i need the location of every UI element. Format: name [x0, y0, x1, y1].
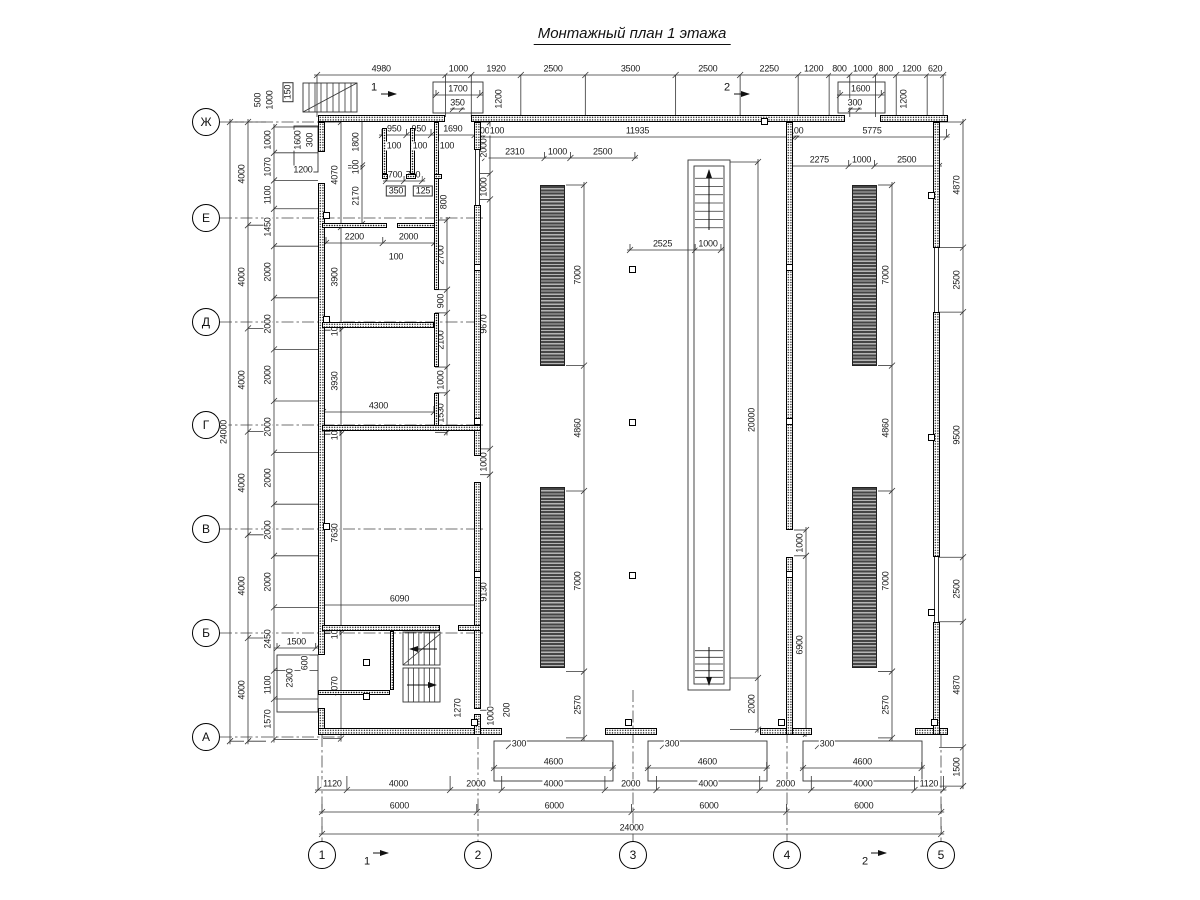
- dim-value: 4870: [953, 174, 962, 195]
- axis-bubble-row-А: А: [192, 723, 220, 751]
- column-mark: [931, 719, 938, 726]
- wall-segment: [318, 183, 325, 655]
- axis-bubble-row-Е: Е: [192, 204, 220, 232]
- dim-value: 2000: [264, 519, 273, 540]
- axis-bubble-col-4: 4: [773, 841, 801, 869]
- dim-value: 1100: [264, 675, 273, 696]
- wall-segment: [397, 223, 435, 228]
- column-mark: [629, 266, 636, 273]
- wall-segment: [322, 625, 440, 631]
- dim-value: 11935: [625, 127, 650, 136]
- dim-value: 4000: [238, 576, 247, 597]
- wall-segment: [322, 425, 481, 431]
- column-mark: [323, 316, 330, 323]
- column-mark: [363, 659, 370, 666]
- column-mark: [786, 264, 793, 271]
- wall-segment: [605, 728, 657, 735]
- dim-value: 2500: [542, 65, 563, 74]
- dim-value: 2275: [809, 156, 830, 165]
- dimension-label: 200: [503, 702, 512, 718]
- dimension-label: 600: [301, 655, 310, 671]
- wall-segment: [880, 115, 948, 122]
- column-mark: [363, 693, 370, 700]
- dim-value: 1120: [322, 780, 343, 789]
- axis-bubble-col-5: 5: [927, 841, 955, 869]
- dim-value: 300: [847, 99, 863, 108]
- dim-value: 4600: [697, 758, 718, 767]
- dim-value: 700: [387, 171, 403, 180]
- dim-value: 4000: [388, 780, 409, 789]
- column-mark: [474, 418, 481, 425]
- dim-value: 2500: [592, 148, 613, 157]
- dim-value: 1000: [264, 129, 273, 150]
- dim-value: 24000: [220, 419, 229, 445]
- dim-value: 7000: [882, 571, 891, 592]
- axis-bubble-col-2: 2: [464, 841, 492, 869]
- dimension-label: 300: [306, 132, 315, 148]
- wall-segment: [382, 174, 388, 179]
- dim-value: 6000: [389, 802, 410, 811]
- dimension-label: 1200: [495, 88, 504, 109]
- dimension-label: 300: [664, 740, 680, 749]
- dimension-label: 300: [819, 740, 835, 749]
- dimension-label: 100: [489, 127, 505, 136]
- dim-value: 2170: [352, 185, 361, 206]
- dim-value: 4860: [574, 418, 583, 439]
- dimension-label: 1200: [900, 88, 909, 109]
- section-mark-label: 2: [724, 83, 730, 94]
- dim-value: 2310: [504, 148, 525, 157]
- dim-value: 1070: [264, 156, 273, 177]
- axis-bubble-row-В: В: [192, 515, 220, 543]
- dim-value: 2000: [398, 233, 419, 242]
- dimension-label: 100: [388, 253, 404, 262]
- wall-segment: [390, 631, 394, 690]
- wall-segment: [786, 122, 793, 530]
- dim-value: 4980: [371, 65, 392, 74]
- dimension-label: 500: [254, 92, 263, 108]
- dim-value: 1000: [697, 240, 718, 249]
- dimension-label: 1200: [292, 166, 313, 175]
- dim-value: 1700: [447, 85, 468, 94]
- dim-value: 4070: [331, 164, 340, 185]
- wall-segment: [915, 728, 948, 735]
- axis-bubble-col-3: 3: [619, 841, 647, 869]
- wall-segment: [933, 122, 940, 248]
- equipment-strip: [852, 487, 877, 668]
- dim-value: 7000: [574, 571, 583, 592]
- dim-value: 2500: [953, 579, 962, 600]
- wall-segment: [410, 128, 415, 174]
- dimension-label: 100: [439, 142, 455, 151]
- wall-segment: [382, 128, 387, 174]
- dim-value: 5775: [861, 127, 882, 136]
- dimension-label: 1000: [487, 705, 496, 726]
- dim-value: 4000: [238, 266, 247, 287]
- dim-value: 2000: [264, 365, 273, 386]
- window-segment: [475, 150, 480, 205]
- equipment-strip: [540, 185, 565, 366]
- column-mark: [629, 572, 636, 579]
- wall-segment: [434, 313, 439, 367]
- axis-bubble-row-Д: Д: [192, 308, 220, 336]
- dim-value: 2000: [620, 780, 641, 789]
- axis-bubble-col-1: 1: [308, 841, 336, 869]
- dim-value: 4600: [543, 758, 564, 767]
- dim-value: 7000: [882, 265, 891, 286]
- dim-value: 2250: [759, 65, 780, 74]
- axis-bubble-row-Г: Г: [192, 411, 220, 439]
- dim-value: 1450: [264, 217, 273, 238]
- column-mark: [786, 571, 793, 578]
- window-segment: [934, 248, 939, 312]
- dim-value: 6090: [389, 595, 410, 604]
- dim-value: 800: [878, 65, 894, 74]
- dimension-label: 150: [283, 82, 294, 102]
- dim-value: 1920: [485, 65, 506, 74]
- dim-value: 950: [386, 125, 402, 134]
- dim-value: 6000: [698, 802, 719, 811]
- dim-value: 3500: [620, 65, 641, 74]
- dim-value: 3900: [331, 267, 340, 288]
- dim-value: 1120: [919, 780, 940, 789]
- dim-value: 1600: [850, 85, 871, 94]
- wall-segment: [786, 557, 793, 735]
- dim-value: 2570: [882, 694, 891, 715]
- dim-value: 2000: [775, 780, 796, 789]
- wall-segment: [322, 223, 387, 228]
- column-mark: [928, 434, 935, 441]
- column-mark: [323, 212, 330, 219]
- dimension-label: 300: [511, 740, 527, 749]
- dim-value: 2000: [264, 313, 273, 334]
- dim-value: 1000: [852, 65, 873, 74]
- section-mark-label: 1: [364, 857, 370, 868]
- floor-plan: Монтажный план 1 этажа 49801000192025003…: [0, 0, 1200, 900]
- drawing-linework: [0, 0, 1200, 900]
- dimension-label: 1000: [266, 89, 275, 110]
- dim-value: 6000: [853, 802, 874, 811]
- dim-value: 800: [831, 65, 847, 74]
- dim-value: 2500: [896, 156, 917, 165]
- dim-value: 2500: [697, 65, 718, 74]
- section-mark-label: 1: [371, 83, 377, 94]
- column-mark: [471, 719, 478, 726]
- dim-value: 2525: [652, 240, 673, 249]
- dim-value: 620: [927, 65, 943, 74]
- dim-value: 2000: [748, 693, 757, 714]
- column-mark: [323, 523, 330, 530]
- dimension-label: 100: [412, 142, 428, 151]
- dim-value: 2000: [264, 416, 273, 437]
- dimension-label: 800: [440, 194, 449, 210]
- section-mark-label: 2: [862, 857, 868, 868]
- dim-value: 1000: [480, 176, 489, 197]
- dim-value: 1000: [796, 532, 805, 553]
- equipment-strip: [852, 185, 877, 366]
- wall-segment: [458, 625, 481, 631]
- dimension-label: 100: [386, 142, 402, 151]
- dimension-label: 125: [413, 186, 433, 197]
- column-mark: [928, 609, 935, 616]
- wall-segment: [471, 115, 845, 122]
- column-mark: [761, 118, 768, 125]
- wall-segment: [474, 482, 481, 709]
- dim-value: 350: [449, 99, 465, 108]
- dim-value: 1000: [547, 148, 568, 157]
- dim-value: 1200: [803, 65, 824, 74]
- axis-bubble-row-Б: Б: [192, 619, 220, 647]
- dim-value: 1800: [352, 132, 361, 153]
- equipment-strip: [540, 487, 565, 668]
- dim-value: 2500: [953, 269, 962, 290]
- dim-value: 1200: [901, 65, 922, 74]
- outline: [277, 655, 318, 712]
- column-mark: [625, 719, 632, 726]
- dim-value: 1100: [264, 184, 273, 205]
- dim-value: 4300: [368, 402, 389, 411]
- dim-value: 2000: [264, 468, 273, 489]
- dimension-label: 2300: [286, 667, 295, 688]
- dim-value: 2570: [574, 694, 583, 715]
- dim-value: 1500: [953, 756, 962, 777]
- wall-segment: [406, 174, 416, 179]
- dim-value: 1000: [851, 156, 872, 165]
- wall-segment: [322, 322, 434, 328]
- dim-value: 2000: [264, 261, 273, 282]
- dim-value: 4000: [238, 679, 247, 700]
- dim-value: 6000: [544, 802, 565, 811]
- dim-value: 100: [352, 159, 361, 175]
- dim-value: 2000: [264, 571, 273, 592]
- dim-value: 1500: [286, 638, 307, 647]
- wall-segment: [474, 122, 481, 150]
- column-mark: [474, 571, 481, 578]
- axis-bubble-row-Ж: Ж: [192, 108, 220, 136]
- dimension-label: 1270: [454, 697, 463, 718]
- dim-value: 4000: [697, 780, 718, 789]
- wall-segment: [318, 690, 390, 695]
- dim-value: 1570: [264, 709, 273, 730]
- dim-value: 4000: [238, 163, 247, 184]
- dim-value: 4600: [852, 758, 873, 767]
- dim-value: 4860: [882, 418, 891, 439]
- column-mark: [474, 264, 481, 271]
- column-mark: [629, 419, 636, 426]
- dim-value: 2450: [264, 628, 273, 649]
- dim-value: 2000: [465, 780, 486, 789]
- wall-segment: [318, 122, 325, 152]
- dim-value: 1690: [442, 125, 463, 134]
- dim-value: 900: [437, 293, 446, 309]
- dim-value: 4000: [852, 780, 873, 789]
- dim-value: 4000: [238, 369, 247, 390]
- dim-value: 4870: [953, 674, 962, 695]
- dim-value: 7000: [574, 265, 583, 286]
- dim-value: 4000: [543, 780, 564, 789]
- dim-value: 3930: [331, 370, 340, 391]
- dimension-label: 350: [386, 186, 406, 197]
- dim-value: 1000: [448, 65, 469, 74]
- dim-value: 2200: [344, 233, 365, 242]
- dim-value: 20000: [748, 407, 757, 433]
- column-mark: [786, 418, 793, 425]
- detail-line: [303, 83, 357, 112]
- dim-value: 6900: [796, 634, 805, 655]
- dim-value: 4000: [238, 473, 247, 494]
- dim-value: 1000: [437, 369, 446, 390]
- column-mark: [778, 719, 785, 726]
- dimension-label: 1600: [294, 129, 303, 150]
- dim-value: 9500: [953, 424, 962, 445]
- dim-value: 24000: [619, 824, 645, 833]
- dim-value: 7630: [331, 522, 340, 543]
- wall-segment: [318, 115, 445, 122]
- column-mark: [928, 192, 935, 199]
- wall-segment: [434, 174, 442, 179]
